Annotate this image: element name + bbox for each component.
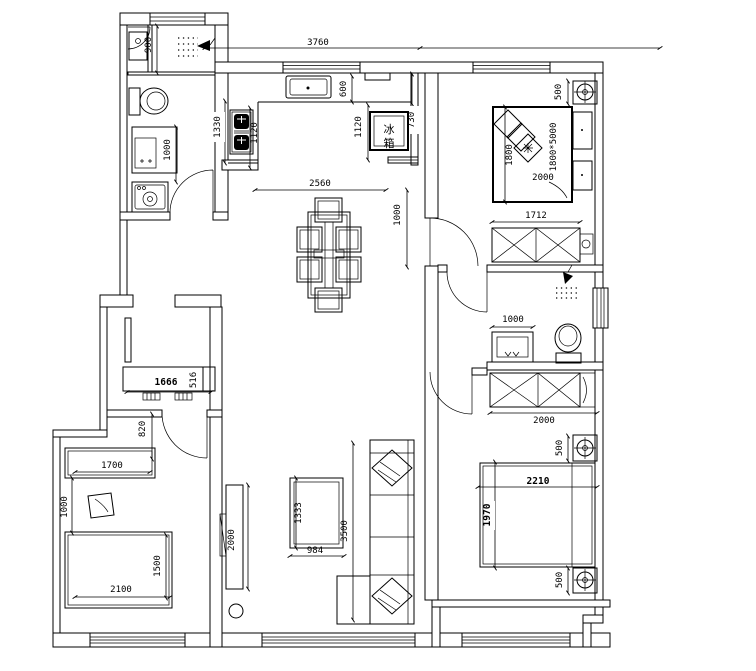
dim-lb-bed-w: 1500 <box>153 555 163 577</box>
dim-hall-cabinet-l: 1666 <box>155 377 178 388</box>
kitchen: 冰 箱 <box>228 76 418 163</box>
wardrobe2 <box>490 373 595 407</box>
door-bathroom2-icon <box>447 272 487 312</box>
nightstand <box>573 161 592 190</box>
dim-br2-ns-top: 500 <box>555 440 565 456</box>
window-kitchen-top <box>283 62 360 73</box>
dim-tv-cabinet: 2000 <box>227 529 237 551</box>
washing-machine <box>132 182 168 212</box>
dim-table-l: 1333 <box>294 502 304 524</box>
dim-br2-bed-w: 2210 <box>527 476 550 487</box>
door-bathroom1-icon <box>170 170 213 213</box>
window-bedroom1-top <box>473 62 550 73</box>
toilet2 <box>555 324 581 363</box>
dining-chair <box>336 257 361 282</box>
bedroom1 <box>492 81 597 262</box>
dim-hall-opening: 820 <box>138 421 148 437</box>
radiator <box>125 318 131 362</box>
dim-br1-bed-l: 2000 <box>532 173 554 183</box>
dim-fridge-col: 1120 <box>354 116 364 138</box>
window-bottom-bedroom2 <box>462 633 570 647</box>
dim-sofa-l: 3500 <box>340 520 350 542</box>
window-right-wall <box>593 288 608 328</box>
door-left-bedroom-icon <box>162 413 207 458</box>
nightstand <box>573 112 592 149</box>
fridge-label-bottom: 箱 <box>384 136 395 150</box>
dim-br1-nightstand: 500 <box>554 84 564 100</box>
bathroom1 <box>129 32 215 212</box>
floor-plan-drawing: 冰 箱 <box>0 0 756 671</box>
lamp-icon <box>573 81 597 104</box>
vanity2 <box>492 332 533 362</box>
dimension-labels: 3760 900 600 1330 1120 1120 730 2560 100… <box>60 37 565 595</box>
living-room <box>123 318 414 624</box>
dim-stove-right: 1120 <box>250 122 260 144</box>
bathroom2 <box>490 265 595 407</box>
fridge: 冰 箱 <box>370 112 408 150</box>
dim-br1-wardrobe: 1712 <box>525 211 547 221</box>
dining-chair <box>336 227 361 252</box>
dim-br2-wardrobe: 2000 <box>533 416 555 426</box>
windows <box>90 13 608 647</box>
stool-icon <box>229 604 243 618</box>
shower-spray-icon <box>178 38 215 56</box>
dining-chair <box>297 227 322 252</box>
dining-chair <box>297 257 322 282</box>
dim-bath2-vanity: 1000 <box>502 315 524 325</box>
dim-study-gap: 1000 <box>60 496 70 518</box>
dim-dining-wall: 1000 <box>393 204 403 226</box>
dim-fridge-width: 730 <box>407 112 417 128</box>
lamp-icon <box>574 437 596 459</box>
fridge-label-top: 冰 <box>384 123 395 136</box>
dim-counter-depth: 600 <box>339 81 349 97</box>
wardrobe1 <box>492 228 593 262</box>
window-bottom-left <box>90 633 185 647</box>
dim-lb-bed-l: 2100 <box>110 585 132 595</box>
window-bath1-top <box>150 13 205 25</box>
window-bottom-living <box>262 633 415 647</box>
dim-shower-depth: 900 <box>144 37 154 53</box>
dim-study-desk: 1700 <box>101 461 123 471</box>
dim-br2-bed-l: 1970 <box>482 503 493 526</box>
door-bedroom1-icon <box>430 218 478 266</box>
dim-br2-ns-bottom: 500 <box>555 572 565 588</box>
dining-chair <box>315 288 342 312</box>
dim-table-w: 984 <box>307 546 323 556</box>
dim-top-width: 3760 <box>307 38 329 48</box>
desk-stool <box>88 493 114 518</box>
kitchen-sink <box>286 76 331 98</box>
dim-br1-bed-spec: 1800*5000 <box>549 123 559 172</box>
toilet1 <box>129 88 168 115</box>
dim-kitchen-opening: 2560 <box>309 179 331 189</box>
dining-set <box>297 198 361 312</box>
floor-plan-page: 冰 箱 <box>0 0 756 671</box>
bedroom2 <box>480 435 597 593</box>
dim-bath1-vanity: 1000 <box>163 139 173 161</box>
dim-br1-bed-w: 1800 <box>505 144 515 166</box>
dim-stove-left: 1330 <box>213 116 223 138</box>
walls <box>53 13 610 647</box>
dim-hall-cabinet-d: 516 <box>189 372 199 388</box>
dining-chair <box>315 198 342 222</box>
lamp-icon <box>574 569 596 591</box>
